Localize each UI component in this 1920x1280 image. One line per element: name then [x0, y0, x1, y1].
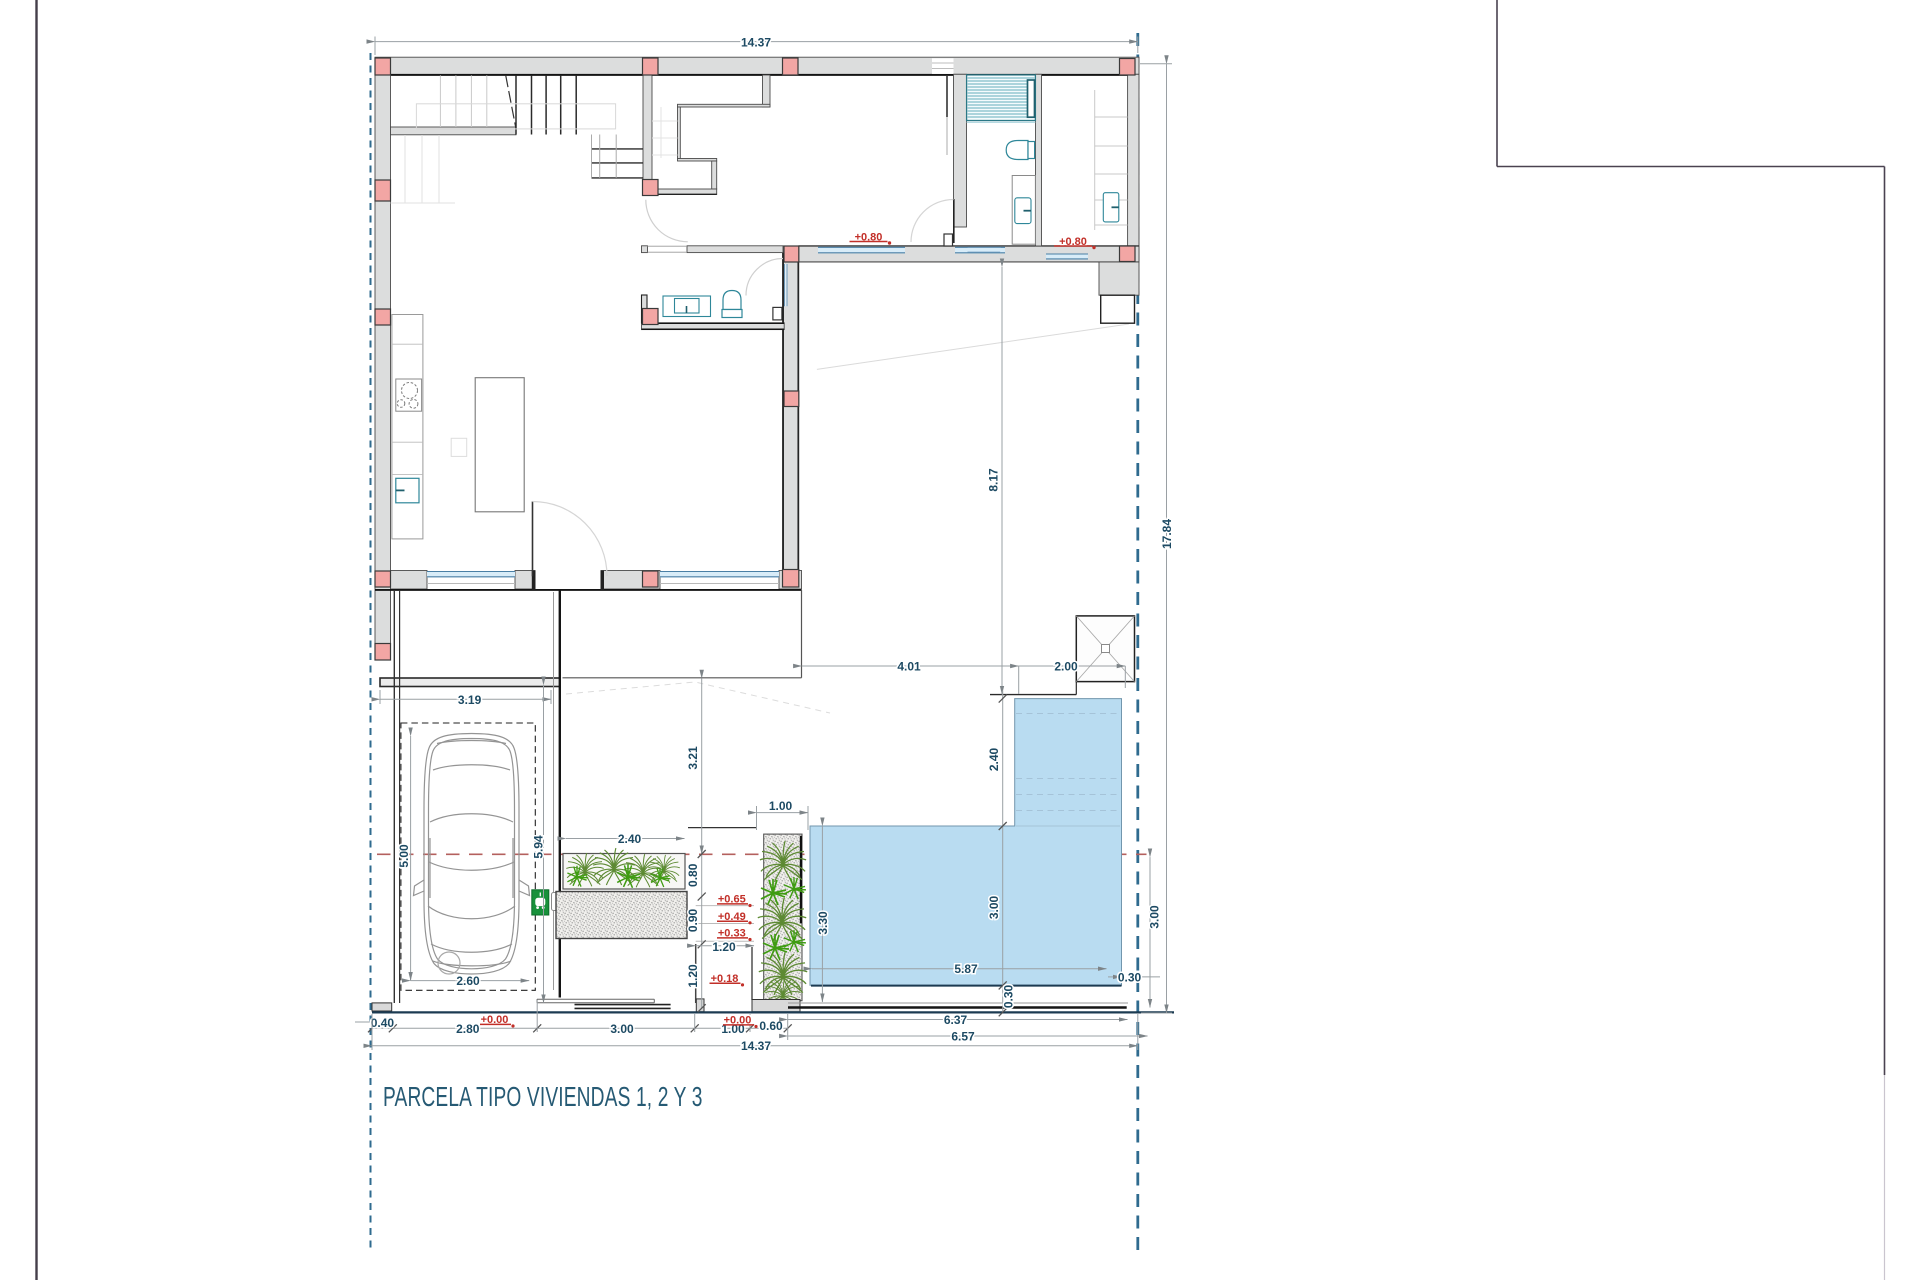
- svg-text:0.40: 0.40: [371, 1016, 395, 1030]
- svg-text:14.37: 14.37: [741, 1039, 771, 1053]
- svg-text:4.01: 4.01: [897, 660, 921, 674]
- svg-text:3.00: 3.00: [610, 1022, 634, 1036]
- svg-text:5.94: 5.94: [532, 835, 546, 859]
- svg-text:5.87: 5.87: [954, 962, 978, 976]
- svg-text:3.30: 3.30: [816, 911, 830, 935]
- svg-text:14.37: 14.37: [741, 35, 771, 49]
- svg-text:2.60: 2.60: [456, 974, 480, 988]
- svg-text:PARCELA TIPO VIVIENDAS 1, 2 Y: PARCELA TIPO VIVIENDAS 1, 2 Y 3: [383, 1081, 703, 1112]
- svg-text:5.00: 5.00: [397, 844, 411, 868]
- svg-text:1.00: 1.00: [769, 799, 793, 813]
- svg-text:0.60: 0.60: [759, 1019, 783, 1033]
- svg-text:6.37: 6.37: [944, 1013, 968, 1027]
- svg-text:0.80: 0.80: [686, 863, 700, 887]
- svg-text:0.30: 0.30: [1002, 984, 1016, 1008]
- svg-text:3.21: 3.21: [686, 746, 700, 770]
- svg-text:17.84: 17.84: [1160, 519, 1174, 549]
- svg-text:8.17: 8.17: [987, 468, 1001, 492]
- svg-text:1.20: 1.20: [686, 964, 700, 988]
- svg-text:1.20: 1.20: [712, 940, 736, 954]
- svg-text:0.90: 0.90: [686, 908, 700, 932]
- svg-text:2.40: 2.40: [618, 832, 642, 846]
- svg-text:2.40: 2.40: [987, 747, 1001, 771]
- svg-text:6.57: 6.57: [951, 1030, 975, 1044]
- svg-text:3.00: 3.00: [1148, 905, 1162, 929]
- svg-text:0.30: 0.30: [1118, 971, 1142, 985]
- svg-text:2.80: 2.80: [456, 1022, 480, 1036]
- svg-text:3.19: 3.19: [458, 693, 482, 707]
- svg-text:3.00: 3.00: [987, 895, 1001, 919]
- svg-text:2.00: 2.00: [1054, 660, 1078, 674]
